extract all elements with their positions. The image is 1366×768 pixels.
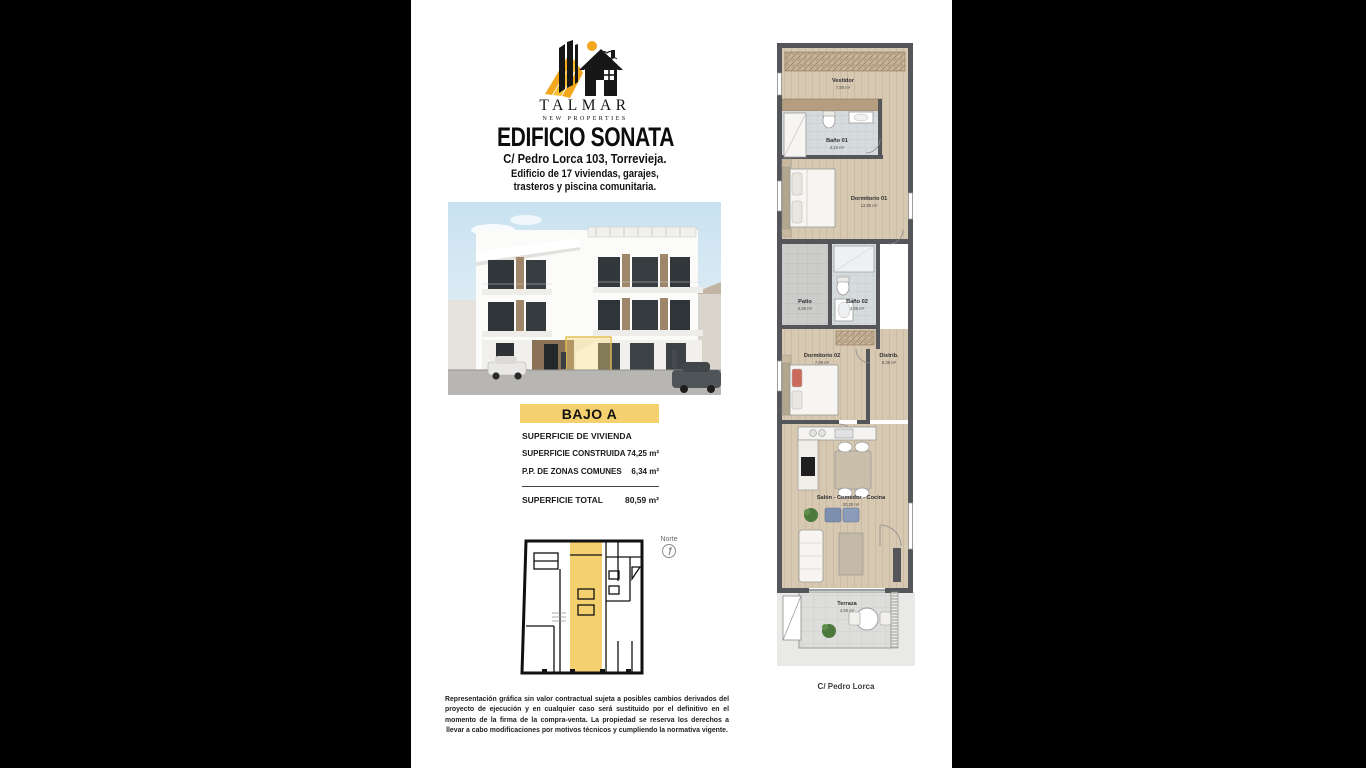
room-area: 4,10 m²	[830, 145, 845, 150]
compass-icon	[661, 543, 677, 559]
row-value: 74,25 m²	[627, 449, 659, 458]
floor-plan: Vestidor 7,80 m² Baño 01 4,10 m² Dormito…	[777, 43, 915, 675]
screen: TALMAR NEW PROPERTIES EDIFICIO SONATA C/…	[0, 0, 1366, 768]
building-photo	[448, 202, 721, 395]
room-label: Baño 01	[826, 138, 848, 144]
room-label: Patio	[798, 299, 812, 305]
surface-table-header: SUPERFICIE DE VIVIENDA	[522, 431, 659, 441]
room-label: Terraza	[837, 601, 857, 607]
total-label: SUPERFICIE TOTAL	[522, 495, 603, 505]
surface-table: SUPERFICIE DE VIVIENDA SUPERFICIE CONSTR…	[522, 431, 659, 505]
room-area: 4,50 m²	[840, 608, 855, 613]
building-description: Edificio de 17 viviendas, garajes, trast…	[411, 168, 759, 194]
street-label: C/ Pedro Lorca	[777, 682, 915, 691]
legal-disclaimer: Representación gráfica sin valor contrac…	[445, 695, 729, 736]
unit-label-banner: BAJO A	[520, 404, 659, 423]
north-indicator: Norte	[654, 536, 684, 561]
room-area: 12,80 m²	[861, 203, 878, 208]
page-title: EDIFICIO SONATA	[411, 122, 759, 153]
brand-tagline: NEW PROPERTIES	[542, 115, 627, 122]
room-area: 20,30 m²	[843, 502, 860, 507]
talmar-logo: TALMAR NEW PROPERTIES	[539, 34, 631, 124]
building-address: C/ Pedro Lorca 103, Torrevieja.	[411, 151, 759, 166]
room-label: Dormitorio 01	[851, 196, 887, 202]
table-row: SUPERFICIE CONSTRUIDA 74,25 m²	[522, 449, 659, 458]
row-label: P.P. DE ZONAS COMUNES	[522, 467, 622, 476]
row-label: SUPERFICIE CONSTRUIDA	[522, 449, 626, 458]
room-label: Baño 02	[846, 299, 868, 305]
room-area: 5,35 m²	[882, 360, 897, 365]
room-label: Distrib.	[879, 353, 899, 359]
house-sun-icon	[545, 40, 623, 98]
room-area: 7,00 m²	[815, 360, 830, 365]
room-label: Vestidor	[832, 78, 855, 84]
room-label: Dormitorio 02	[804, 353, 840, 359]
row-value: 6,34 m²	[631, 467, 659, 476]
room-area: 7,80 m²	[836, 85, 851, 90]
room-area: 4,50 m²	[798, 306, 813, 311]
table-row: P.P. DE ZONAS COMUNES 6,34 m²	[522, 467, 659, 476]
room-area: 3,35 m²	[850, 306, 865, 311]
highlighted-unit	[570, 541, 602, 673]
room-label: Salón - Comedor - Cocina	[817, 495, 886, 501]
table-divider	[522, 486, 659, 487]
brochure-page: TALMAR NEW PROPERTIES EDIFICIO SONATA C/…	[411, 0, 952, 768]
key-plan	[514, 531, 654, 683]
total-value: 80,59 m²	[625, 495, 659, 505]
table-total-row: SUPERFICIE TOTAL 80,59 m²	[522, 495, 659, 505]
brand-name: TALMAR	[539, 97, 630, 114]
north-label: Norte	[660, 536, 677, 543]
